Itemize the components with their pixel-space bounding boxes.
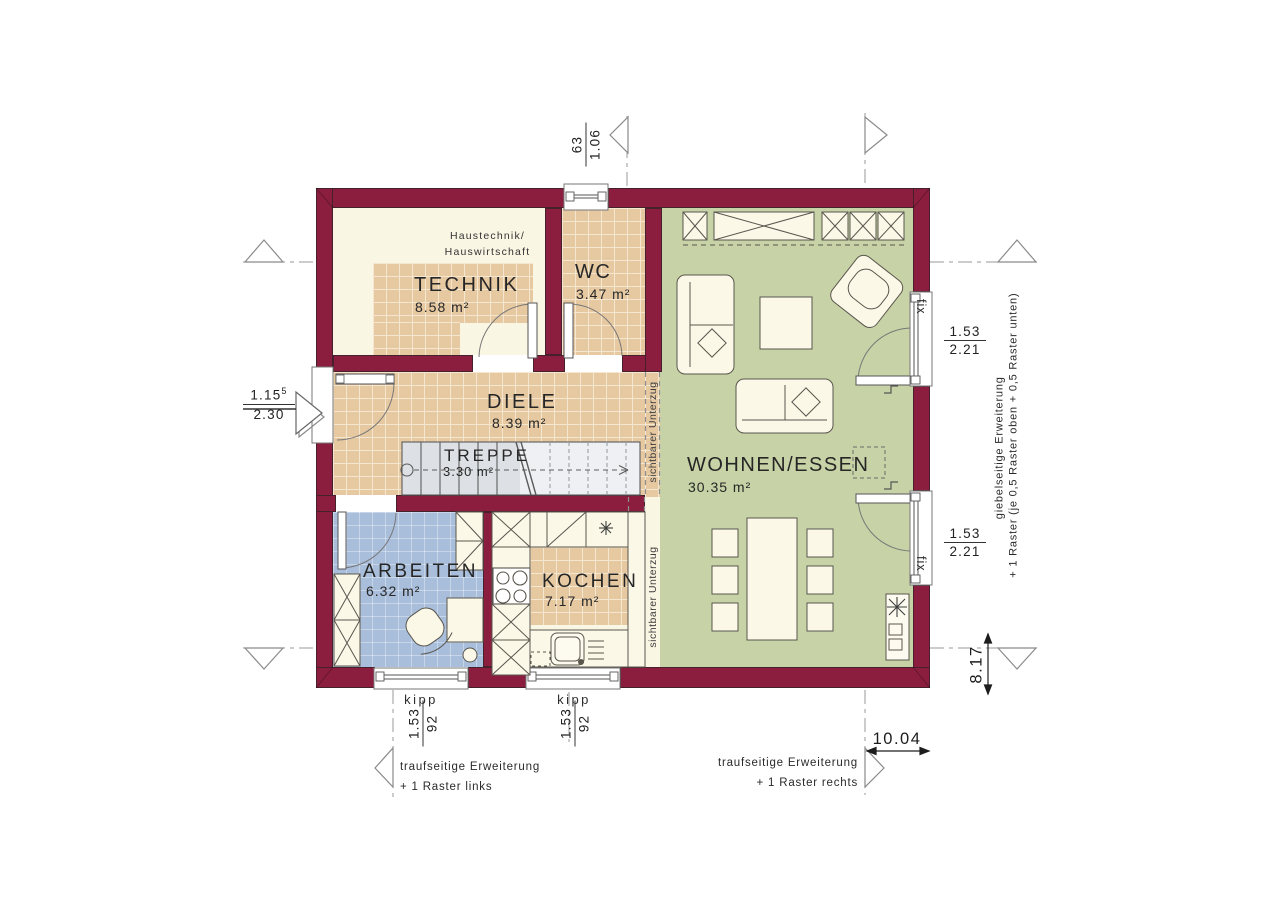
room-label-wohnen: WOHNEN/ESSEN [687, 454, 869, 477]
room-area-wohnen: 30.35 m² [688, 479, 751, 495]
annotation-eaves-left: traufseitige Erweiterung + 1 Raster link… [400, 757, 540, 797]
fraction-bar [944, 542, 986, 543]
window-wc-top [564, 184, 608, 210]
room-label-diele: DIELE [487, 391, 557, 414]
dim-fix-lower: 1.53 2.21 [944, 526, 986, 559]
room-label-treppe: TREPPE [444, 446, 530, 466]
annotation-eaves-right: traufseitige Erweiterung + 1 Raster rech… [700, 753, 858, 793]
wall-right-2 [913, 386, 930, 491]
wall-top-right [608, 188, 930, 208]
room-area-wc: 3.47 m² [576, 286, 630, 302]
wall-bottom-1 [316, 667, 375, 688]
room-label-arbeiten: ARBEITEN [363, 561, 478, 583]
wall-diele-north-b [533, 355, 565, 372]
room-area-kochen: 7.17 m² [545, 593, 599, 609]
fraction-bar [944, 340, 986, 341]
room-area-arbeiten: 6.32 m² [366, 583, 420, 599]
room-label-wc: WC [575, 261, 611, 284]
room-label-technik: TECHNIK [414, 274, 519, 297]
window-kipp-right [526, 668, 620, 689]
wall-left-upper [316, 188, 333, 368]
technik-tiled-area-lower [373, 322, 460, 355]
dim-entrance: 1.155 2.30 [243, 386, 295, 422]
wall-bottom-2 [468, 667, 527, 688]
fraction-bar [243, 404, 295, 406]
room-label-kochen: KOCHEN [542, 571, 638, 593]
dim-fix-upper: 1.53 2.21 [944, 324, 986, 357]
room-area-treppe: 3.30 m² [443, 464, 494, 479]
wall-diele-south-b [396, 495, 645, 512]
dim-total-depth: 8.17 [968, 635, 987, 695]
floor-plan: Haustechnik/ Hauswirtschaft TECHNIK 8.58… [0, 0, 1280, 905]
annotation-gable: giebelseitige Erweiterung + 1 Raster (je… [993, 318, 1021, 578]
dim-kipp-left: 1.53 92 [407, 701, 440, 747]
dim-total-width: 10.04 [866, 730, 928, 749]
wall-bottom-3 [620, 667, 930, 688]
wall-left-lower [316, 442, 333, 688]
technik-note: Haustechnik/ Hauswirtschaft [400, 228, 575, 261]
window-label-fix-upper: fix [914, 299, 928, 315]
window-kipp-left [374, 668, 468, 689]
wall-arbeiten-kochen [483, 512, 500, 667]
wall-diele-south-a [316, 495, 336, 512]
wall-diele-north-a [333, 355, 473, 372]
eaves-left-arrow [375, 748, 393, 787]
stairs-upper-run [520, 442, 640, 495]
room-area-diele: 8.39 m² [492, 415, 546, 431]
fraction-bar [423, 701, 424, 747]
dim-top-window: 63 1.06 [570, 123, 603, 167]
beam-label-lower: sichtbarer Unterzug [647, 537, 659, 657]
window-label-fix-lower: fix [914, 556, 928, 572]
room-area-technik: 8.58 m² [415, 299, 469, 315]
wall-wc-wohnen [645, 208, 662, 372]
dim-kipp-right: 1.53 92 [559, 701, 592, 747]
wall-top-left [316, 188, 565, 208]
wall-right-1 [913, 188, 930, 292]
beam-label-upper: sichtbarer Unterzug [647, 372, 659, 492]
wohnen-floor [660, 208, 913, 667]
fraction-bar [575, 701, 576, 747]
fraction-bar [586, 123, 587, 167]
eaves-right-arrow [865, 748, 884, 787]
